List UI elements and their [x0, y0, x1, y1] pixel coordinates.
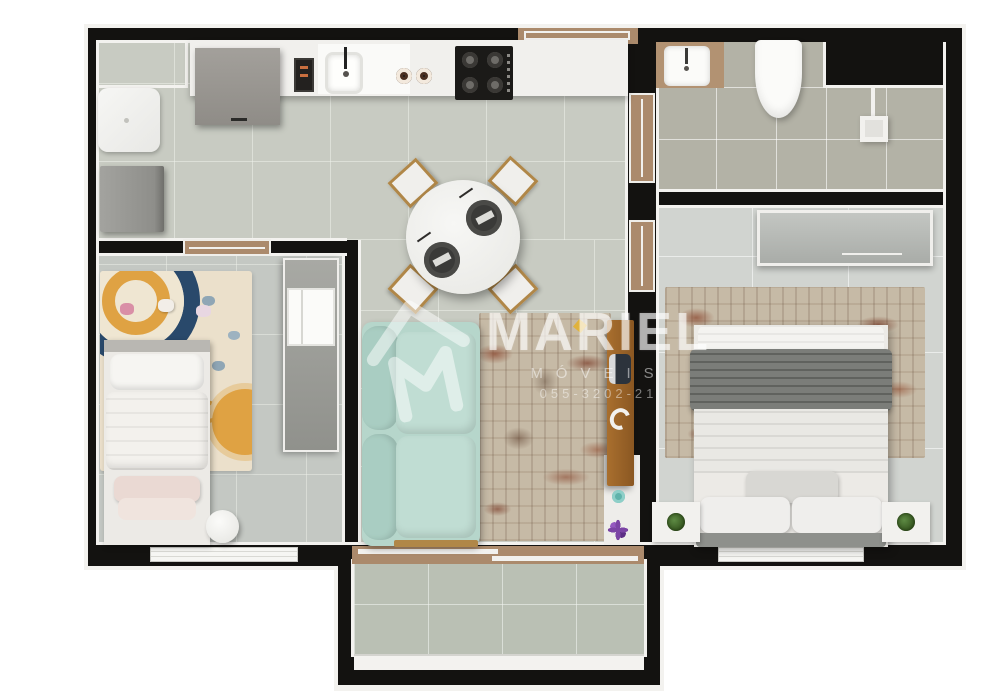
- nightstand-right: [882, 502, 930, 542]
- kitchen-sink: [325, 52, 363, 94]
- plant-left: [667, 513, 685, 531]
- bathroom-drain: [684, 66, 689, 71]
- teal-cup: [612, 490, 625, 503]
- shower-head-plate: [865, 120, 883, 137]
- trim-kids-wall-e2: [358, 240, 361, 545]
- master-bedroom-window: [718, 547, 864, 562]
- kids-bedroom-door: [183, 239, 271, 256]
- bed-sheet-top: [698, 325, 884, 351]
- slider-panel-left: [358, 549, 498, 554]
- trim-bathbed-wall-s: [656, 205, 946, 208]
- kids-headboard: [104, 340, 210, 352]
- living-room-rug: [479, 313, 611, 541]
- trim-bath-notch-h: [823, 85, 946, 88]
- fridge-handle: [231, 118, 247, 121]
- bed-duvet-white: [694, 409, 888, 473]
- cooktop: [455, 46, 513, 100]
- kitchen-window-frame: [524, 31, 630, 40]
- kids-stool: [206, 510, 239, 543]
- toaster-slot-2: [300, 74, 308, 77]
- toy-3: [196, 305, 211, 317]
- bathroom-vanity: [656, 42, 724, 88]
- kids-wardrobe: [283, 258, 339, 452]
- sofa-seat-1: [396, 332, 476, 434]
- bathroom-door-line: [641, 99, 643, 177]
- tv-console: [607, 320, 634, 486]
- slider-panel-right: [492, 556, 638, 561]
- bedroom-door-line: [641, 226, 643, 286]
- bathroom-faucet: [685, 48, 688, 64]
- trim-bath-notch-v: [823, 42, 826, 88]
- kids-bed: [104, 340, 210, 545]
- plant-right: [897, 513, 915, 531]
- wardrobe-divider: [842, 253, 902, 255]
- bedroom-wardrobe: [757, 210, 933, 266]
- tv: [609, 354, 631, 384]
- purple-plant: [606, 518, 630, 542]
- shower-head: [860, 116, 888, 142]
- cutlery-2: [417, 232, 431, 243]
- sun-motif: [212, 389, 252, 455]
- counter-burner-knob-1: [396, 68, 412, 84]
- bed-blanket-gray: [690, 349, 892, 411]
- bathroom-sink: [664, 46, 710, 86]
- toy-2: [158, 299, 174, 312]
- kids-pillow-top: [110, 354, 204, 390]
- trim-kids-wall-e1: [342, 256, 345, 545]
- trim-balcony-e: [644, 559, 647, 657]
- trim-laundry-corner-v: [185, 40, 188, 88]
- balcony-parapet: [354, 654, 644, 670]
- washing-machine: [100, 166, 164, 232]
- kids-duvet: [106, 392, 208, 470]
- sofa-back: [362, 326, 398, 430]
- burner-3: [462, 77, 478, 93]
- nightstand-left: [652, 502, 700, 542]
- laundry-tub: [98, 88, 160, 152]
- bathroom-door: [629, 93, 655, 183]
- sofa-wood-base: [394, 540, 478, 547]
- trim-balcony-w: [351, 559, 354, 657]
- napkin-1: [475, 210, 494, 225]
- kids-pillow-pink-2: [118, 498, 196, 520]
- kids-wardrobe-shelf: [287, 288, 335, 346]
- floor-plan-scene: MARIEL MÓVEIS 055-3202-21: [0, 0, 1000, 700]
- rug-accent-yellow: [573, 319, 587, 333]
- cutlery-1: [459, 188, 473, 199]
- trim-center-wall-e: [656, 42, 659, 545]
- cooktop-knobs: [507, 54, 510, 92]
- toaster-slot-1: [300, 66, 308, 69]
- place-setting-1: [466, 200, 502, 236]
- cloud-3: [228, 331, 240, 340]
- bed-pillow-left: [700, 497, 790, 533]
- sofa-back-2: [362, 434, 398, 540]
- balcony-sliding-door: [352, 546, 644, 564]
- sink-drain: [343, 71, 349, 77]
- balcony-floor: [354, 559, 644, 657]
- fridge: [195, 48, 280, 125]
- double-bed: [694, 325, 888, 547]
- master-bedroom-door: [629, 220, 655, 292]
- burner-2: [487, 52, 503, 68]
- burner-1: [462, 52, 478, 68]
- sink-faucet: [344, 47, 347, 69]
- toy-1: [120, 303, 134, 315]
- dining-table: [406, 180, 520, 294]
- trim-right: [943, 42, 946, 545]
- cloud-2: [212, 361, 225, 371]
- shower-pipe: [871, 86, 875, 118]
- counter-burner-knob-2: [416, 68, 432, 84]
- napkin-2: [432, 252, 451, 267]
- trim-bathbed-wall-n: [656, 189, 946, 192]
- sofa: [362, 322, 480, 546]
- kids-shelf-divider: [301, 290, 303, 344]
- kids-bedroom-window: [150, 547, 298, 562]
- burner-4: [487, 77, 503, 93]
- place-setting-2: [424, 242, 460, 278]
- kids-door-track: [189, 247, 265, 249]
- bed-pillow-right: [792, 497, 882, 533]
- headphones: [606, 405, 633, 433]
- bed-footboard: [696, 533, 886, 547]
- toaster: [294, 58, 314, 92]
- sofa-seat-2: [396, 436, 476, 538]
- laundry-tub-drain: [124, 118, 129, 123]
